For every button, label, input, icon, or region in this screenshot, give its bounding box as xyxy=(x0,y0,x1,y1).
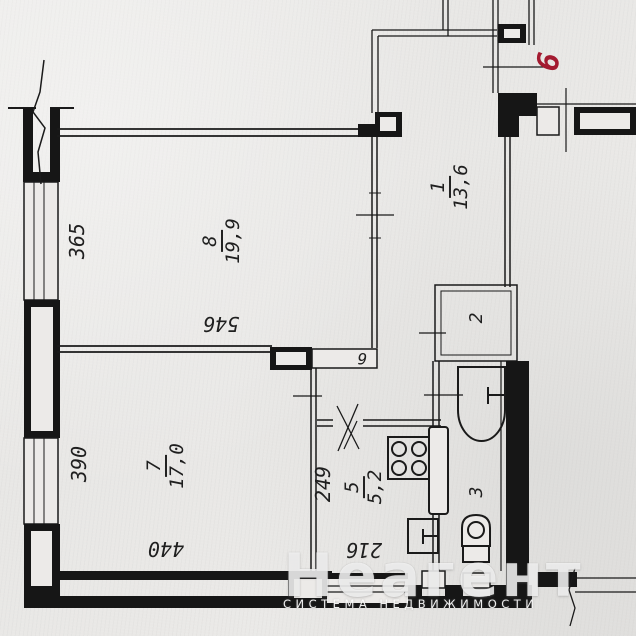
room-label-kitchen: 5 5,2 xyxy=(343,470,385,504)
room-label-corridor: 6 xyxy=(357,350,367,366)
room-number: 1 xyxy=(429,176,451,197)
hall-room-walls xyxy=(372,0,510,287)
bottom-walls xyxy=(24,571,577,608)
kitchen-door-swing xyxy=(337,404,359,451)
wall-break-bottom-right xyxy=(569,568,636,626)
right-exterior-wall xyxy=(506,361,529,585)
dimension-left-top: 365 xyxy=(67,223,87,259)
window-living xyxy=(24,182,58,300)
dimension-bedroom-width: 440 xyxy=(148,539,184,559)
room-label-bedroom: 7 17,0 xyxy=(145,443,187,489)
entrance-shaft xyxy=(483,0,636,152)
room-label-bathroom: 3 xyxy=(468,487,486,498)
room-area: 13,6 xyxy=(451,164,471,210)
toilet-icon xyxy=(462,515,490,562)
dimension-kitchen-width: 216 xyxy=(346,540,382,560)
bathroom-door-panel xyxy=(429,427,448,514)
room-area: 19,9 xyxy=(223,218,243,264)
room-label-hall-room: 1 13,6 xyxy=(429,164,471,210)
bathtub-icon xyxy=(458,367,505,441)
floor-plan-drawing xyxy=(0,0,636,636)
room-label-living: 8 19,9 xyxy=(201,218,243,264)
room-label-closet: 2 xyxy=(468,313,486,324)
dimension-left-bottom: 390 xyxy=(69,446,89,482)
room-number: 7 xyxy=(145,455,167,476)
window-kitchen xyxy=(327,573,408,603)
window-bedroom xyxy=(24,438,58,524)
stove-icon xyxy=(388,437,429,479)
room-area: 5,2 xyxy=(365,470,385,504)
hall-closet-box xyxy=(312,349,377,368)
room-area: 17,0 xyxy=(167,443,187,489)
room-number: 5 xyxy=(343,476,365,497)
room-number: 8 xyxy=(201,230,223,251)
living-bedroom-divider xyxy=(57,346,272,352)
wall-break-top-left xyxy=(33,60,45,184)
dimension-kitchen-depth: 249 xyxy=(313,466,333,502)
dimension-living-width: 546 xyxy=(203,314,239,334)
floor-plan: 8 19,9 7 17,0 1 13,6 5 5,2 2 3 6 365 390… xyxy=(0,0,636,636)
